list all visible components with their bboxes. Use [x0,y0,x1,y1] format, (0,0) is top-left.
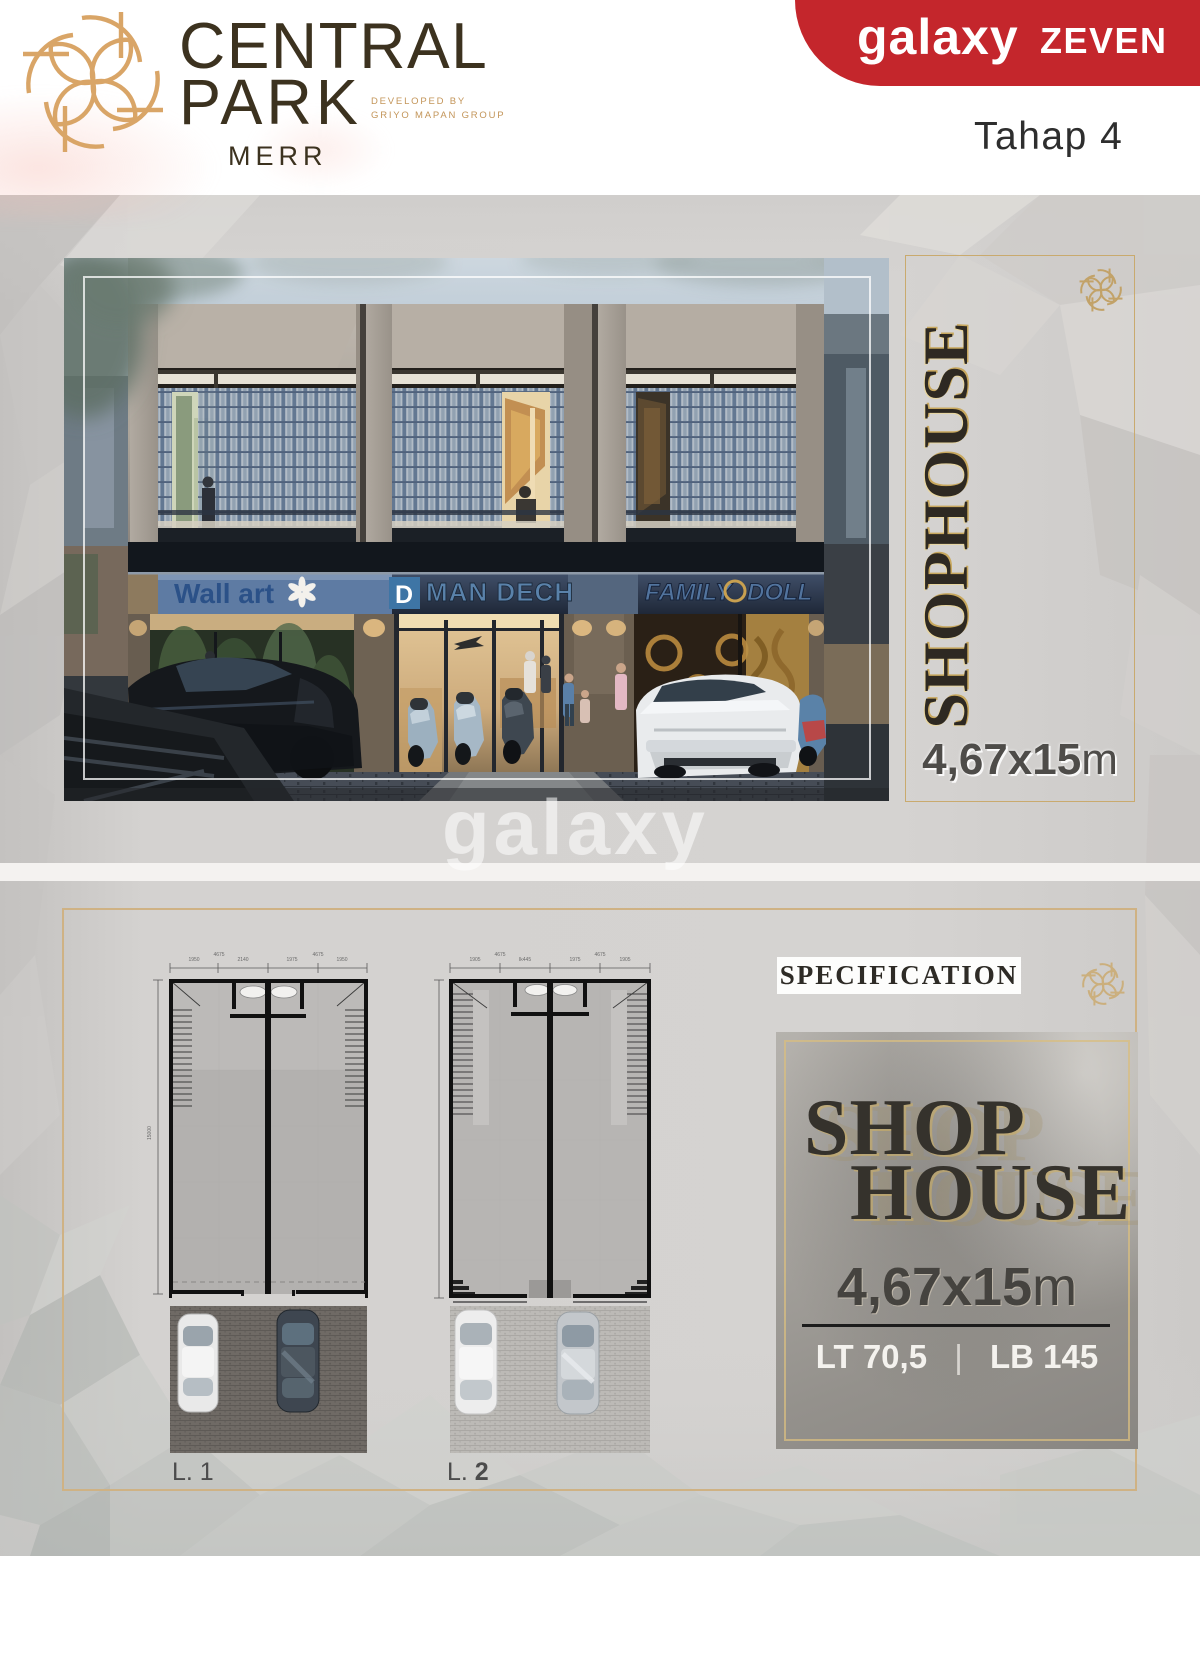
svg-text:Ik445: Ik445 [519,957,531,963]
svg-text:4675: 4675 [494,952,505,958]
svg-text:4675: 4675 [312,952,323,958]
svg-text:1975: 1975 [569,957,580,963]
svg-text:1975: 1975 [286,957,297,963]
svg-text:1950: 1950 [188,957,199,963]
svg-text:1950: 1950 [336,957,347,963]
svg-text:4675: 4675 [213,952,224,958]
svg-text:1905: 1905 [469,957,480,963]
svg-text:15000: 15000 [147,1126,153,1140]
svg-text:1905: 1905 [619,957,630,963]
svg-text:2140: 2140 [237,957,248,963]
svg-text:4675: 4675 [594,952,605,958]
